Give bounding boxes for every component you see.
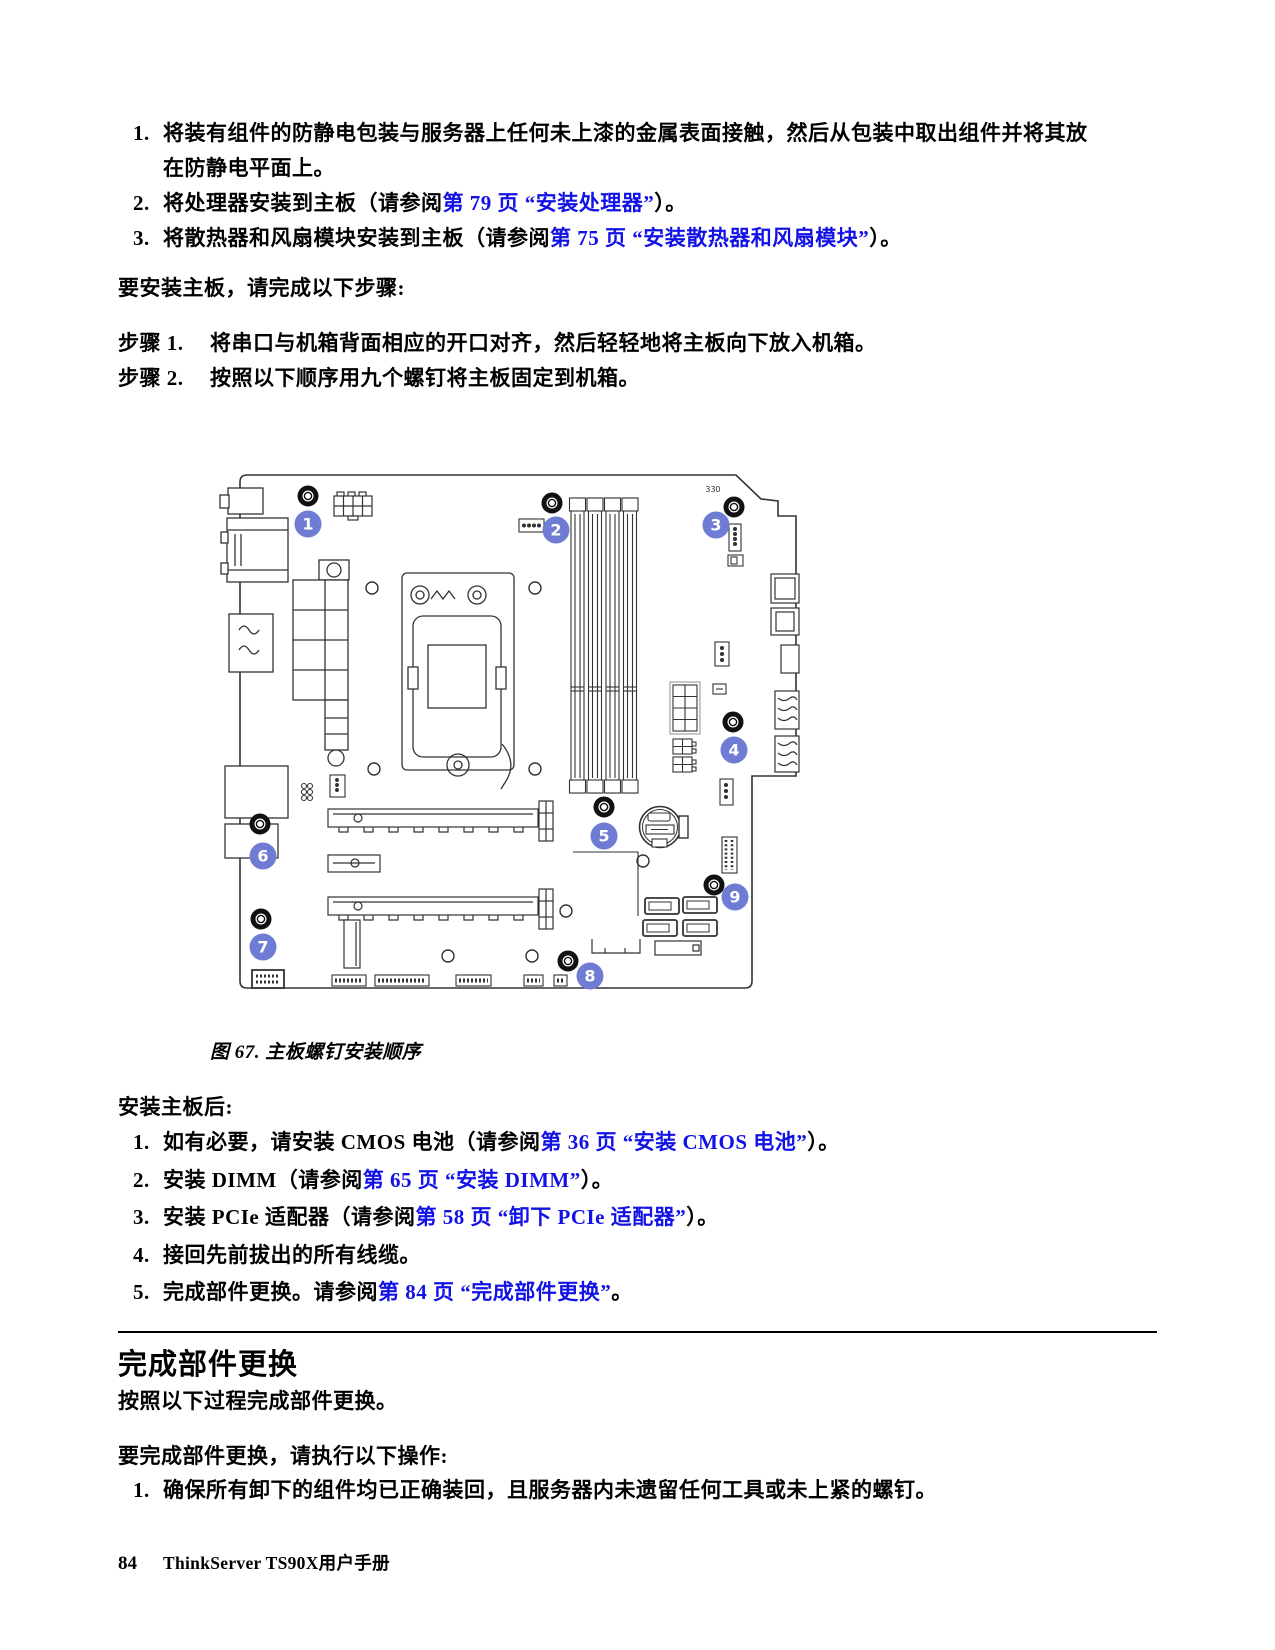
callout-8: 8 [577,963,604,990]
list-item: 3. 将散热器和风扇模块安装到主板（请参阅第 75 页 “安装散热器和风扇模块”… [133,221,1088,256]
text-run: ）。 [807,1130,840,1154]
text-run: 将装有组件的防静电包装与服务器上任何未上漆的金属表面接触，然后从包装中取出组件并… [163,121,1088,180]
section-lead: 按照以下过程完成部件更换。 [118,1384,398,1419]
page-reference-link[interactable]: 第 65 页 “安装 DIMM” [363,1168,581,1192]
page-number: 84 [118,1553,137,1575]
text-run: 安装 DIMM（请参阅 [163,1168,363,1192]
usb-port-block [229,614,273,672]
text-run: 如有必要，请安装 CMOS 电池（请参阅 [163,1130,541,1154]
step-label: 步骤 2. [118,361,210,396]
pcie-x1-slot [328,855,380,872]
svg-text:2: 2 [550,521,561,540]
callout-9: 9 [722,884,749,911]
vga-port [227,518,288,582]
svg-text:3: 3 [710,516,721,535]
step-row: 步骤 2. 按照以下顺序用九个螺钉将主板固定到机箱。 [118,361,1118,396]
section-divider [118,1331,1157,1333]
list-text: 将散热器和风扇模块安装到主板（请参阅第 75 页 “安装散热器和风扇模块”）。 [163,221,1088,256]
page-reference-link[interactable]: 第 36 页 “安装 CMOS 电池” [541,1130,808,1154]
list-text: 如有必要，请安装 CMOS 电池（请参阅第 36 页 “安装 CMOS 电池”）… [163,1124,1133,1162]
audio-jack [228,488,263,514]
callout-4: 4 [721,737,748,764]
list-item: 1. 如有必要，请安装 CMOS 电池（请参阅第 36 页 “安装 CMOS 电… [133,1124,1133,1162]
svg-text:7: 7 [257,938,268,957]
step-text: 将串口与机箱背面相应的开口对齐，然后轻轻地将主板向下放入机箱。 [210,326,877,361]
manual-page: 1. 将装有组件的防静电包装与服务器上任何未上漆的金属表面接触，然后从包装中取出… [0,0,1275,1650]
section-list: 1. 确保所有卸下的组件均已正确装回，且服务器内未遗留任何工具或未上紧的螺钉。 [133,1473,1133,1508]
list-text: 将处理器安装到主板（请参阅第 79 页 “安装处理器”）。 [163,186,1088,221]
callout-1: 1 [295,511,322,538]
text-run: ）。 [654,191,687,215]
callout-5: 5 [591,823,618,850]
after-install-heading: 安装主板后: [118,1090,233,1125]
text-run: 完成部件更换。请参阅 [163,1280,378,1304]
svg-text:6: 6 [257,847,268,866]
list-number: 1. [133,116,163,186]
list-item: 4. 接回先前拔出的所有线缆。 [133,1237,1133,1275]
list-item: 1. 将装有组件的防静电包装与服务器上任何未上漆的金属表面接触，然后从包装中取出… [133,116,1088,186]
after-install-list: 1. 如有必要，请安装 CMOS 电池（请参阅第 36 页 “安装 CMOS 电… [133,1124,1133,1312]
page-reference-link[interactable]: 第 84 页 “完成部件更换” [378,1280,611,1304]
list-number: 3. [133,221,163,256]
svg-text:5: 5 [598,827,609,846]
text-run: ）。 [686,1205,719,1229]
text-run: 将散热器和风扇模块安装到主板（请参阅 [163,226,550,250]
list-number: 3. [133,1199,163,1237]
svg-text:8: 8 [584,967,595,986]
svg-text:1: 1 [302,515,313,534]
page-reference-link[interactable]: 第 79 页 “安装处理器” [443,191,655,215]
callout-2: 2 [543,517,570,544]
step-text: 按照以下顺序用九个螺钉将主板固定到机箱。 [210,361,640,396]
steps-block: 步骤 1. 将串口与机箱背面相应的开口对齐，然后轻轻地将主板向下放入机箱。 步骤… [118,326,1118,396]
page-footer: 84 ThinkServer TS90X用户手册 [118,1550,390,1575]
list-number: 2. [133,1162,163,1200]
front-panel-header-topright [728,524,743,566]
list-item: 5. 完成部件更换。请参阅第 84 页 “完成部件更换”。 [133,1274,1133,1312]
list-text: 将装有组件的防静电包装与服务器上任何未上漆的金属表面接触，然后从包装中取出组件并… [163,116,1088,186]
text-run: ）。 [581,1168,614,1192]
pre-steps-list: 1. 将装有组件的防静电包装与服务器上任何未上漆的金属表面接触，然后从包装中取出… [133,116,1088,256]
step-row: 步骤 1. 将串口与机箱背面相应的开口对齐，然后轻轻地将主板向下放入机箱。 [118,326,1118,361]
list-text: 完成部件更换。请参阅第 84 页 “完成部件更换”。 [163,1274,1133,1312]
fan-header [519,519,544,532]
cpu-socket [402,573,514,789]
page-reference-link[interactable]: 第 75 页 “安装散热器和风扇模块” [550,226,869,250]
list-text: 确保所有卸下的组件均已正确装回，且服务器内未遗留任何工具或未上紧的螺钉。 [163,1473,1133,1508]
text-run: 安装 PCIe 适配器（请参阅 [163,1205,416,1229]
callout-6: 6 [250,843,277,870]
step-label: 步骤 1. [118,326,210,361]
list-number: 1. [133,1473,163,1508]
list-number: 4. [133,1237,163,1275]
page-reference-link[interactable]: 第 58 页 “卸下 PCIe 适配器” [416,1205,687,1229]
front-usb-header [722,837,737,873]
list-number: 5. [133,1274,163,1312]
list-item: 3. 安装 PCIe 适配器（请参阅第 58 页 “卸下 PCIe 适配器”）。 [133,1199,1133,1237]
list-item: 2. 将处理器安装到主板（请参阅第 79 页 “安装处理器”）。 [133,186,1088,221]
list-item: 2. 安装 DIMM（请参阅第 65 页 “安装 DIMM”）。 [133,1162,1133,1200]
list-number: 1. [133,1124,163,1162]
svg-text:4: 4 [728,741,739,760]
text-run: ）。 [869,226,902,250]
cpu-power-connector [334,492,372,520]
figure-caption: 图 67. 主板螺钉安装顺序 [210,1037,421,1064]
list-item: 1. 确保所有卸下的组件均已正确装回，且服务器内未遗留任何工具或未上紧的螺钉。 [133,1473,1133,1508]
text-run: 。 [611,1280,633,1304]
section-intro: 要完成部件更换，请执行以下操作: [118,1439,448,1474]
list-text: 安装 PCIe 适配器（请参阅第 58 页 “卸下 PCIe 适配器”）。 [163,1199,1133,1237]
text-run: 确保所有卸下的组件均已正确装回，且服务器内未遗留任何工具或未上紧的螺钉。 [163,1478,937,1502]
svg-text:9: 9 [729,888,740,907]
ethernet-port [225,766,288,818]
section-title: 完成部件更换 [118,1341,298,1383]
motherboard-screw-order-diagram: 330 [215,448,815,993]
list-text: 接回先前拔出的所有线缆。 [163,1237,1133,1275]
callout-7: 7 [250,934,277,961]
list-text: 安装 DIMM（请参阅第 65 页 “安装 DIMM”）。 [163,1162,1133,1200]
text-run: 将处理器安装到主板（请参阅 [163,191,443,215]
text-run: 接回先前拔出的所有线缆。 [163,1243,421,1267]
callout-3: 3 [703,512,730,539]
install-intro: 要安装主板，请完成以下步骤: [118,271,405,306]
doc-title: ThinkServer TS90X用户手册 [163,1550,390,1575]
silkscreen-label: 330 [705,485,720,494]
list-number: 2. [133,186,163,221]
m2-vertical-connector [344,920,360,968]
